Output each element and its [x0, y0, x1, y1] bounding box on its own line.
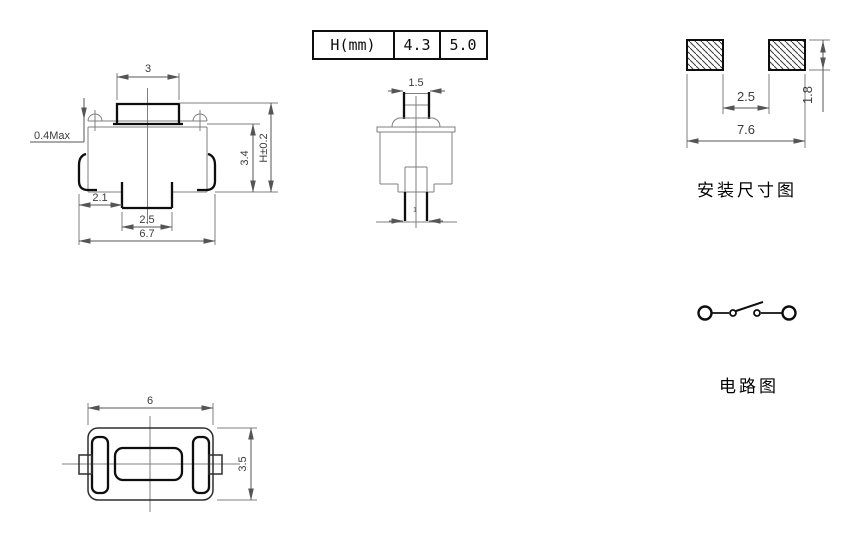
contact-dot-left: [730, 310, 736, 316]
dim-pad-gap-label: 2.5: [737, 89, 755, 104]
height-option-2: 5.0: [449, 36, 476, 54]
bottom-view: 6 3.5: [62, 395, 257, 512]
terminal-hook-right: [197, 154, 215, 190]
switch-technical-drawing: 3 0.4Max 2.1 2.5 6.7 3.4 H±0.2 H(mm) 4.3…: [0, 0, 863, 535]
dim-stem-width-label: 2.5: [139, 214, 154, 226]
dim-bottom-height-label: 3.5: [237, 456, 249, 471]
contact-dot-right: [754, 310, 760, 316]
solder-pad-left: [687, 40, 723, 70]
bottom-contact-right: [193, 437, 209, 493]
circuit-view-caption: 电路图: [719, 377, 779, 397]
technical-drawing-page: 3 0.4Max 2.1 2.5 6.7 3.4 H±0.2 H(mm) 4.3…: [0, 0, 863, 535]
dim-press-max-label: 0.4Max: [34, 130, 71, 142]
dim-button-width-label: 1.5: [408, 77, 423, 89]
dim-total-span-label: 7.6: [737, 122, 755, 137]
height-option-1: 4.3: [403, 36, 430, 54]
dim-bottom-width-label: 6: [147, 395, 153, 407]
dim-total-height-label: H±0.2: [258, 133, 270, 162]
dim-left-offset-label: 2.1: [92, 192, 107, 204]
bottom-contact-left: [92, 437, 108, 493]
height-table-header: H(mm): [330, 36, 375, 54]
mounting-view-caption: 安装尺寸图: [697, 181, 797, 201]
dim-pad-height-label: 1.8: [800, 86, 815, 104]
mounting-dimensions-view: 2.5 7.6 1.8 安装尺寸图: [687, 40, 830, 201]
side-view: 1.5 1: [376, 77, 457, 228]
circuit-diagram-view: 电路图: [699, 302, 796, 397]
height-table: H(mm) 4.3 5.0: [313, 31, 487, 59]
terminal-circle-right: [783, 307, 796, 320]
front-view: 3 0.4Max 2.1 2.5 6.7 3.4 H±0.2: [30, 63, 278, 245]
terminal-circle-left: [699, 307, 712, 320]
dim-body-height-label: 3.4: [239, 150, 251, 165]
solder-pad-right: [769, 40, 805, 70]
dim-top-width-label: 3: [145, 63, 151, 75]
dim-terminal-width-label: 1: [413, 207, 417, 214]
dim-total-width-label: 6.7: [139, 228, 154, 240]
